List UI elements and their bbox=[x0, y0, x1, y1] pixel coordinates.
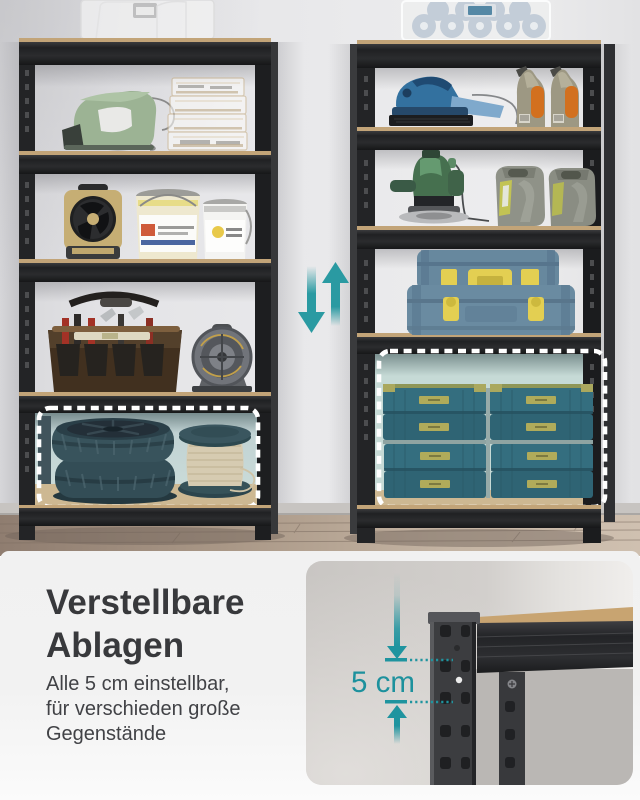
svg-text:5 cm: 5 cm bbox=[351, 666, 415, 699]
